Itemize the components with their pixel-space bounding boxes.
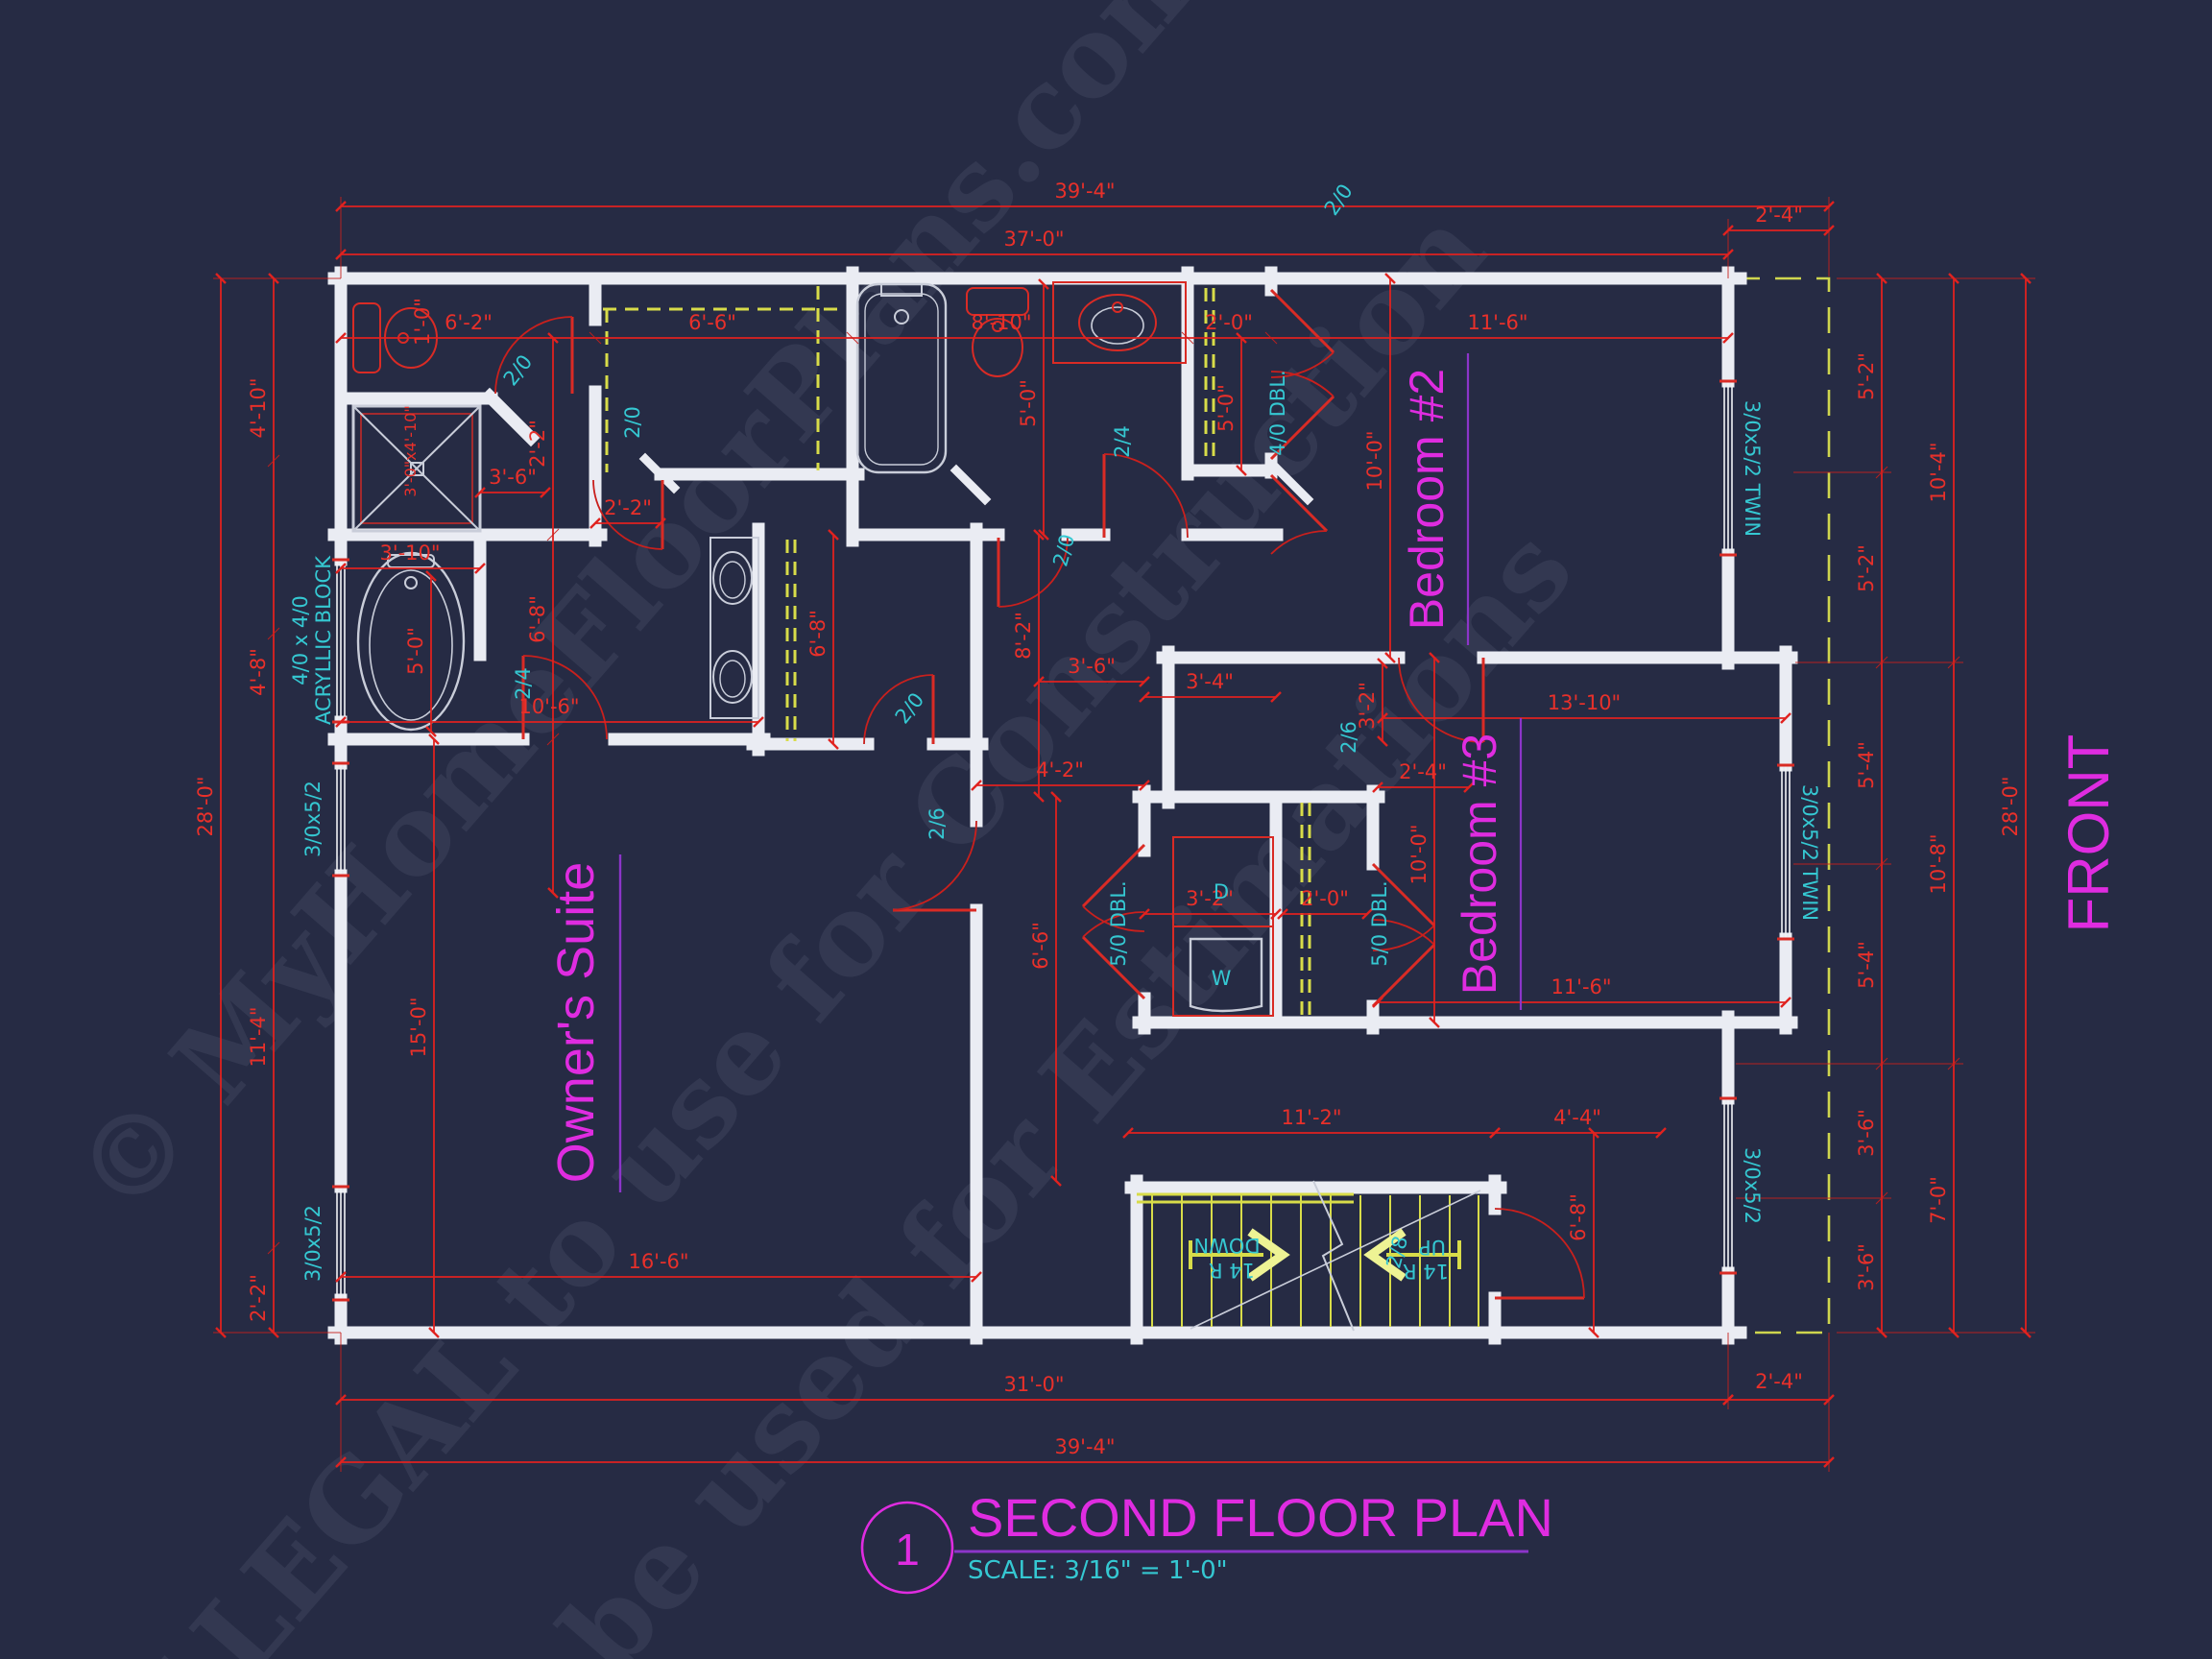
dim-b3-width-lower: 11'-6": [1551, 975, 1611, 998]
label-door-mbath: 2/4: [512, 667, 535, 700]
dim-toilet-offset: 1'-0": [411, 298, 434, 346]
stair-down-arrow: DOWN 14 R: [1190, 1232, 1283, 1282]
dim-closet2-depth: 5'-0": [1214, 384, 1238, 432]
label-door-bath2: 2/4: [1111, 425, 1134, 458]
dim-mcloset-depth: 6'-8": [806, 610, 829, 658]
dim-top-overall: 39'-4": [1054, 180, 1115, 203]
dim-mbath-side: 6'-8": [526, 595, 549, 643]
dim-left-4: 2'-2": [247, 1274, 270, 1322]
dim-bath2-depth: 5'-0": [1017, 379, 1040, 427]
dim-right-total: 28'-0": [1999, 776, 2022, 836]
dim-hall-width: 4'-2": [1036, 758, 1084, 781]
dim-stair-landing: 4'-4": [1553, 1106, 1601, 1129]
dim-right-5: 3'-6": [1855, 1109, 1878, 1157]
vanity-hall-bath: [1053, 282, 1186, 363]
dim-tub-length: 5'-0": [404, 627, 427, 675]
dim-top-main: 37'-0": [1003, 228, 1064, 251]
stair-down-risers: 14 R: [1209, 1259, 1255, 1282]
dim-right-4: 5'-4": [1855, 941, 1878, 989]
label-door-mcloset: 2/0: [891, 688, 929, 728]
dim-right-3: 5'-4": [1855, 741, 1878, 789]
stair-down-label: DOWN: [1193, 1234, 1260, 1257]
dim-wc-width: 6'-2": [445, 311, 493, 334]
dim-bottom-overall: 39'-4": [1054, 1435, 1115, 1458]
label-win-left-lower: 3/0x5/2: [301, 1205, 325, 1282]
dim-left-3: 11'-4": [247, 1006, 270, 1067]
dim-right-56: 7'-0": [1927, 1176, 1950, 1224]
dim-bottom-main: 31'-0": [1003, 1373, 1064, 1396]
dim-b3-depth: 10'-0": [1407, 824, 1431, 884]
dim-closet1-width: 6'-6": [688, 311, 736, 334]
dim-suite-depth: 15'-0": [407, 997, 430, 1057]
window-bedroom3-twin: [1777, 765, 1794, 939]
label-acrylic-block: ACRYLLIC BLOCK: [312, 555, 335, 725]
dim-hall-depth: 8'-2": [1012, 612, 1035, 660]
dim-right-6: 3'-6": [1855, 1243, 1878, 1291]
dim-right-2: 5'-2": [1855, 544, 1878, 592]
label-acrylic-size: 4/0 x 4/0: [289, 595, 312, 685]
label-win-bedroom3: 3/0x5/2 TWIN: [1798, 784, 1821, 921]
dim-wc-niche: 2'-2": [526, 420, 549, 468]
room-bedroom-2: Bedroom #2: [1400, 369, 1454, 630]
label-door-closet1: 2/0: [621, 406, 644, 439]
label-dryer: D: [1214, 880, 1229, 903]
dim-right-34: 10'-8": [1927, 833, 1950, 894]
window-stair-landing: [1719, 1098, 1737, 1273]
dim-b3-width: 13'-10": [1548, 691, 1621, 714]
label-door-b3-closet: 5/0 DBL.: [1368, 880, 1391, 966]
dim-stair-right: 6'-8": [1567, 1193, 1590, 1241]
label-door-b2-corner: 2/0: [1320, 180, 1358, 219]
label-door-b2-closet: 4/0 DBL.: [1266, 370, 1289, 455]
dim-closet1-jog: 2'-2": [604, 496, 652, 519]
label-door-laundry: 5/0 DBL.: [1107, 880, 1130, 966]
dim-bath2-width: 8'-10": [971, 311, 1031, 334]
second-floor-plan-drawing: © MyHomeFloorPlans.com ILLEGAL to use fo…: [0, 0, 2212, 1659]
label-door-bath2-hall: 2/0: [1048, 532, 1079, 569]
stairs: DOWN 14 R UP 14 R: [1137, 1181, 1480, 1331]
dim-hall-a: 3'-6": [1068, 655, 1116, 678]
dim-right-1: 5'-2": [1855, 352, 1878, 400]
dim-left-1: 4'-10": [247, 377, 270, 438]
dim-left-total: 28'-0": [194, 776, 217, 836]
room-owners-suite: Owner's Suite: [547, 862, 605, 1183]
dim-top-right: 2'-4": [1755, 204, 1803, 227]
window-bedroom2-twin: [1719, 381, 1737, 555]
detail-number: 1: [895, 1525, 920, 1575]
label-door-suite: 2/6: [926, 807, 949, 840]
dim-hall-b: 3'-4": [1186, 670, 1234, 693]
label-win-bedroom2: 3/0x5/2 TWIN: [1741, 400, 1764, 537]
dim-linen-width: 2'-0": [1301, 887, 1349, 910]
dim-hall-lower: 6'-6": [1029, 922, 1052, 970]
label-washer: W: [1212, 967, 1232, 990]
dim-left-2: 4'-8": [247, 648, 270, 696]
dim-tub-width: 3'-10": [379, 541, 440, 565]
cad-canvas: © MyHomeFloorPlans.com ILLEGAL to use fo…: [0, 0, 2212, 1659]
dim-stair-run: 11'-2": [1281, 1106, 1341, 1129]
dim-closet2-width: 2'-0": [1205, 311, 1253, 334]
label-door-b3: 2/6: [1337, 721, 1360, 754]
dim-right-12: 10'-4": [1927, 442, 1950, 502]
dim-shower-size: 3'-0"x4'-10": [401, 405, 420, 496]
window-owners-suite: [332, 1187, 349, 1300]
front-label: FRONT: [2056, 734, 2121, 933]
dim-bottom-right: 2'-4": [1755, 1370, 1803, 1393]
stair-up-risers: 14 R: [1403, 1260, 1449, 1283]
dim-b2-depth: 10'-0": [1363, 430, 1386, 491]
watermarks: © MyHomeFloorPlans.com ILLEGAL to use fo…: [50, 0, 1598, 1659]
dim-b2-width: 11'-6": [1467, 311, 1527, 334]
dim-shower-note: 3'-6": [489, 466, 537, 489]
sheet-title: SECOND FLOOR PLAN: [968, 1487, 1553, 1548]
scale-note: SCALE: 3/16" = 1'-0": [968, 1556, 1228, 1585]
label-win-stair: 3/0x5/2: [1741, 1147, 1764, 1224]
label-win-left-upper: 3/0x5/2: [301, 781, 325, 857]
dim-suite-width: 16'-6": [628, 1250, 688, 1273]
stair-up-label: UP: [1419, 1236, 1446, 1259]
dim-b3-entry-b: 2'-4": [1399, 760, 1447, 783]
title-block: 1 SECOND FLOOR PLAN SCALE: 3/16" = 1'-0": [862, 1487, 1553, 1593]
room-bedroom-3: Bedroom #3: [1453, 733, 1506, 995]
